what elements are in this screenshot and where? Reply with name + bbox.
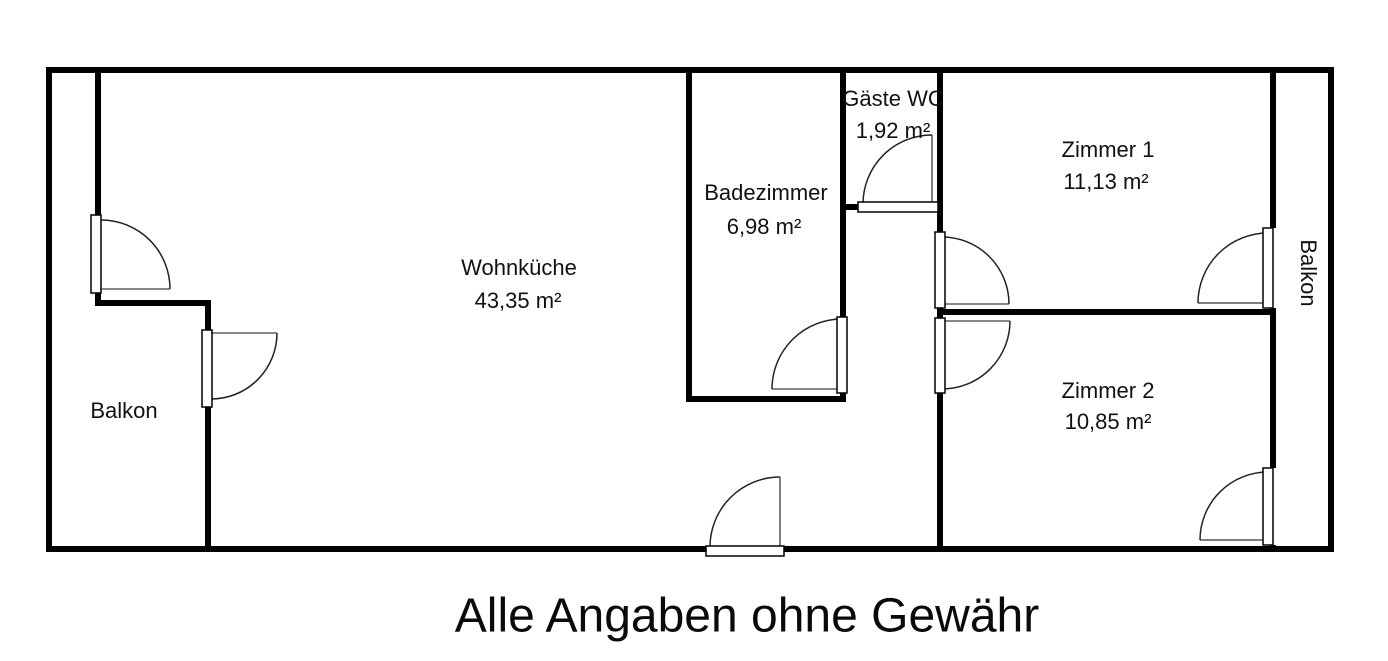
door-leaf-balkon-left-2 bbox=[202, 330, 212, 407]
wall-hallway-lower bbox=[937, 393, 943, 546]
wall-zimmer-divider bbox=[937, 309, 1276, 315]
wall-outer-bottom bbox=[46, 546, 1334, 552]
door-leaf-zimmer1 bbox=[935, 232, 945, 308]
wall-balkon-left-lower bbox=[205, 407, 211, 546]
floor-plan: Wohnküche 43,35 m² Badezimmer 6,98 m² Gä… bbox=[0, 0, 1388, 661]
door-swings bbox=[101, 135, 1268, 547]
door-leaf-zimmer2 bbox=[935, 318, 945, 393]
wall-balkon-right-middle bbox=[1270, 308, 1276, 468]
door-gaeste-wc-arc bbox=[863, 135, 932, 204]
door-badezimmer-arc bbox=[772, 319, 842, 389]
door-balkon-left-1-arc bbox=[101, 220, 170, 289]
door-leaf-zimmer2-balkon bbox=[1263, 468, 1273, 545]
door-zimmer2-arc bbox=[942, 321, 1010, 389]
door-zimmer2-balkon-arc bbox=[1200, 472, 1268, 540]
wall-outer-top bbox=[46, 67, 1334, 73]
wall-badezimmer-left bbox=[686, 73, 692, 402]
wall-balkon-right-stub bbox=[1270, 545, 1276, 552]
wall-balkon-left-lower-upper bbox=[205, 306, 211, 330]
wall-badezimmer-right-stub bbox=[840, 393, 846, 402]
room-area-badezimmer: 6,98 m² bbox=[727, 214, 802, 240]
room-label-zimmer1: Zimmer 1 bbox=[1062, 137, 1155, 163]
room-label-zimmer2: Zimmer 2 bbox=[1062, 378, 1155, 404]
floor-plan-drawing bbox=[0, 0, 1388, 661]
wall-outer-right bbox=[1328, 67, 1334, 552]
room-area-wohnkueche: 43,35 m² bbox=[475, 288, 562, 314]
wall-gaeste-wc-bottom-stub bbox=[840, 204, 860, 210]
wall-outer-left bbox=[46, 67, 52, 552]
door-leaf-entry bbox=[706, 546, 784, 556]
room-label-badezimmer: Badezimmer bbox=[704, 180, 827, 206]
door-leaf-zimmer1-balkon bbox=[1263, 228, 1273, 308]
room-area-gaeste-wc: 1,92 m² bbox=[856, 118, 931, 144]
disclaimer-text: Alle Angaben ohne Gewähr bbox=[455, 589, 1039, 644]
door-leaf-balkon-left-1 bbox=[91, 215, 101, 293]
wall-balkon-right-upper bbox=[1270, 73, 1276, 228]
room-area-zimmer2: 10,85 m² bbox=[1065, 409, 1152, 435]
door-zimmer1-balkon-arc bbox=[1198, 233, 1268, 303]
wall-balkon-left-upper bbox=[95, 73, 101, 215]
wall-badezimmer-bottom bbox=[686, 396, 846, 402]
room-label-balkon-right: Balkon bbox=[1295, 239, 1321, 306]
room-label-gaeste-wc: Gäste WC bbox=[842, 86, 943, 112]
room-label-balkon-left: Balkon bbox=[90, 398, 157, 424]
door-leaf-badezimmer bbox=[837, 317, 847, 393]
room-label-wohnkueche: Wohnküche bbox=[461, 255, 577, 281]
door-zimmer1-arc bbox=[942, 237, 1009, 304]
door-balkon-left-2-arc bbox=[211, 333, 277, 399]
door-leaf-gaeste-wc bbox=[858, 202, 938, 212]
room-area-zimmer1: 11,13 m² bbox=[1063, 169, 1148, 195]
wall-balkon-left-horizontal bbox=[95, 300, 211, 306]
door-entry-arc bbox=[710, 477, 780, 547]
